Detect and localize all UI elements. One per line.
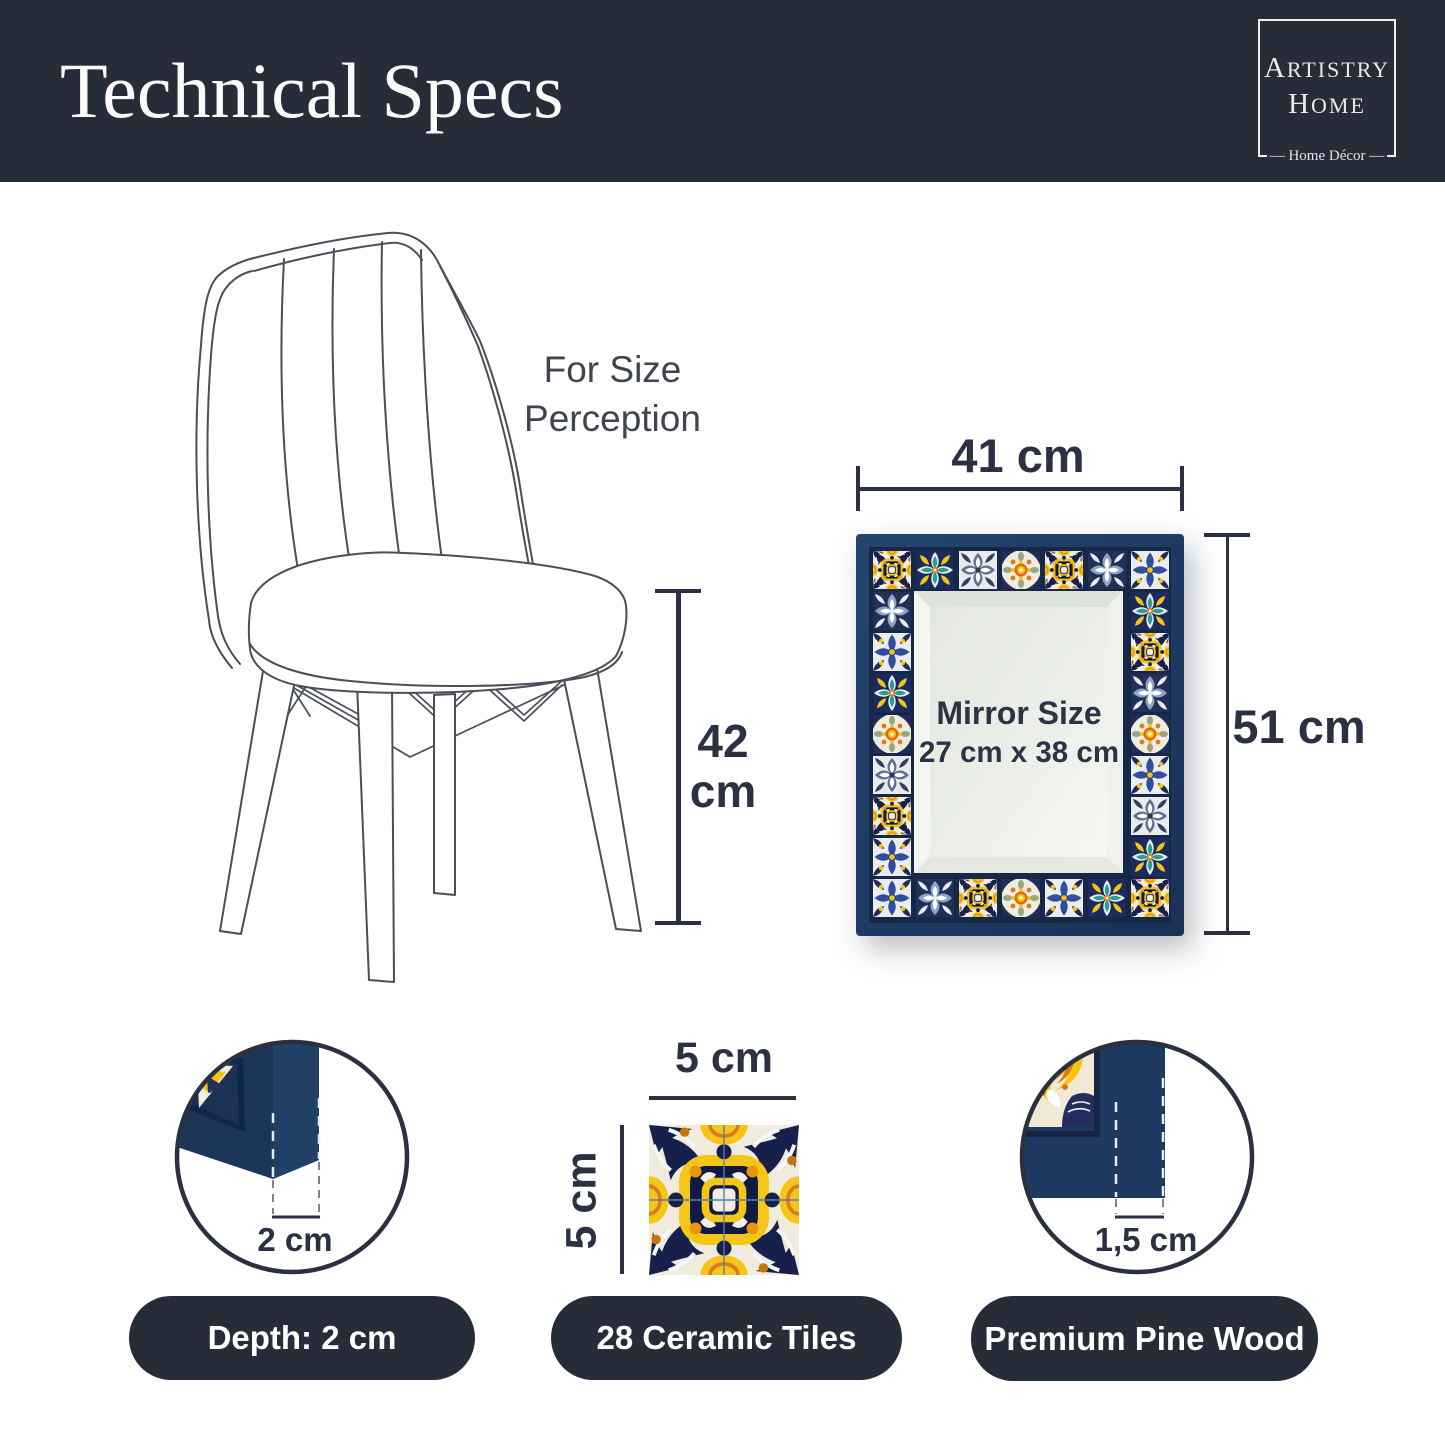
svg-text:27 cm x 38 cm: 27 cm x 38 cm (919, 736, 1119, 769)
svg-text:1,5 cm: 1,5 cm (1095, 1221, 1198, 1258)
svg-text:2 cm: 2 cm (257, 1221, 332, 1258)
svg-text:Mirror Size: Mirror Size (936, 695, 1101, 731)
